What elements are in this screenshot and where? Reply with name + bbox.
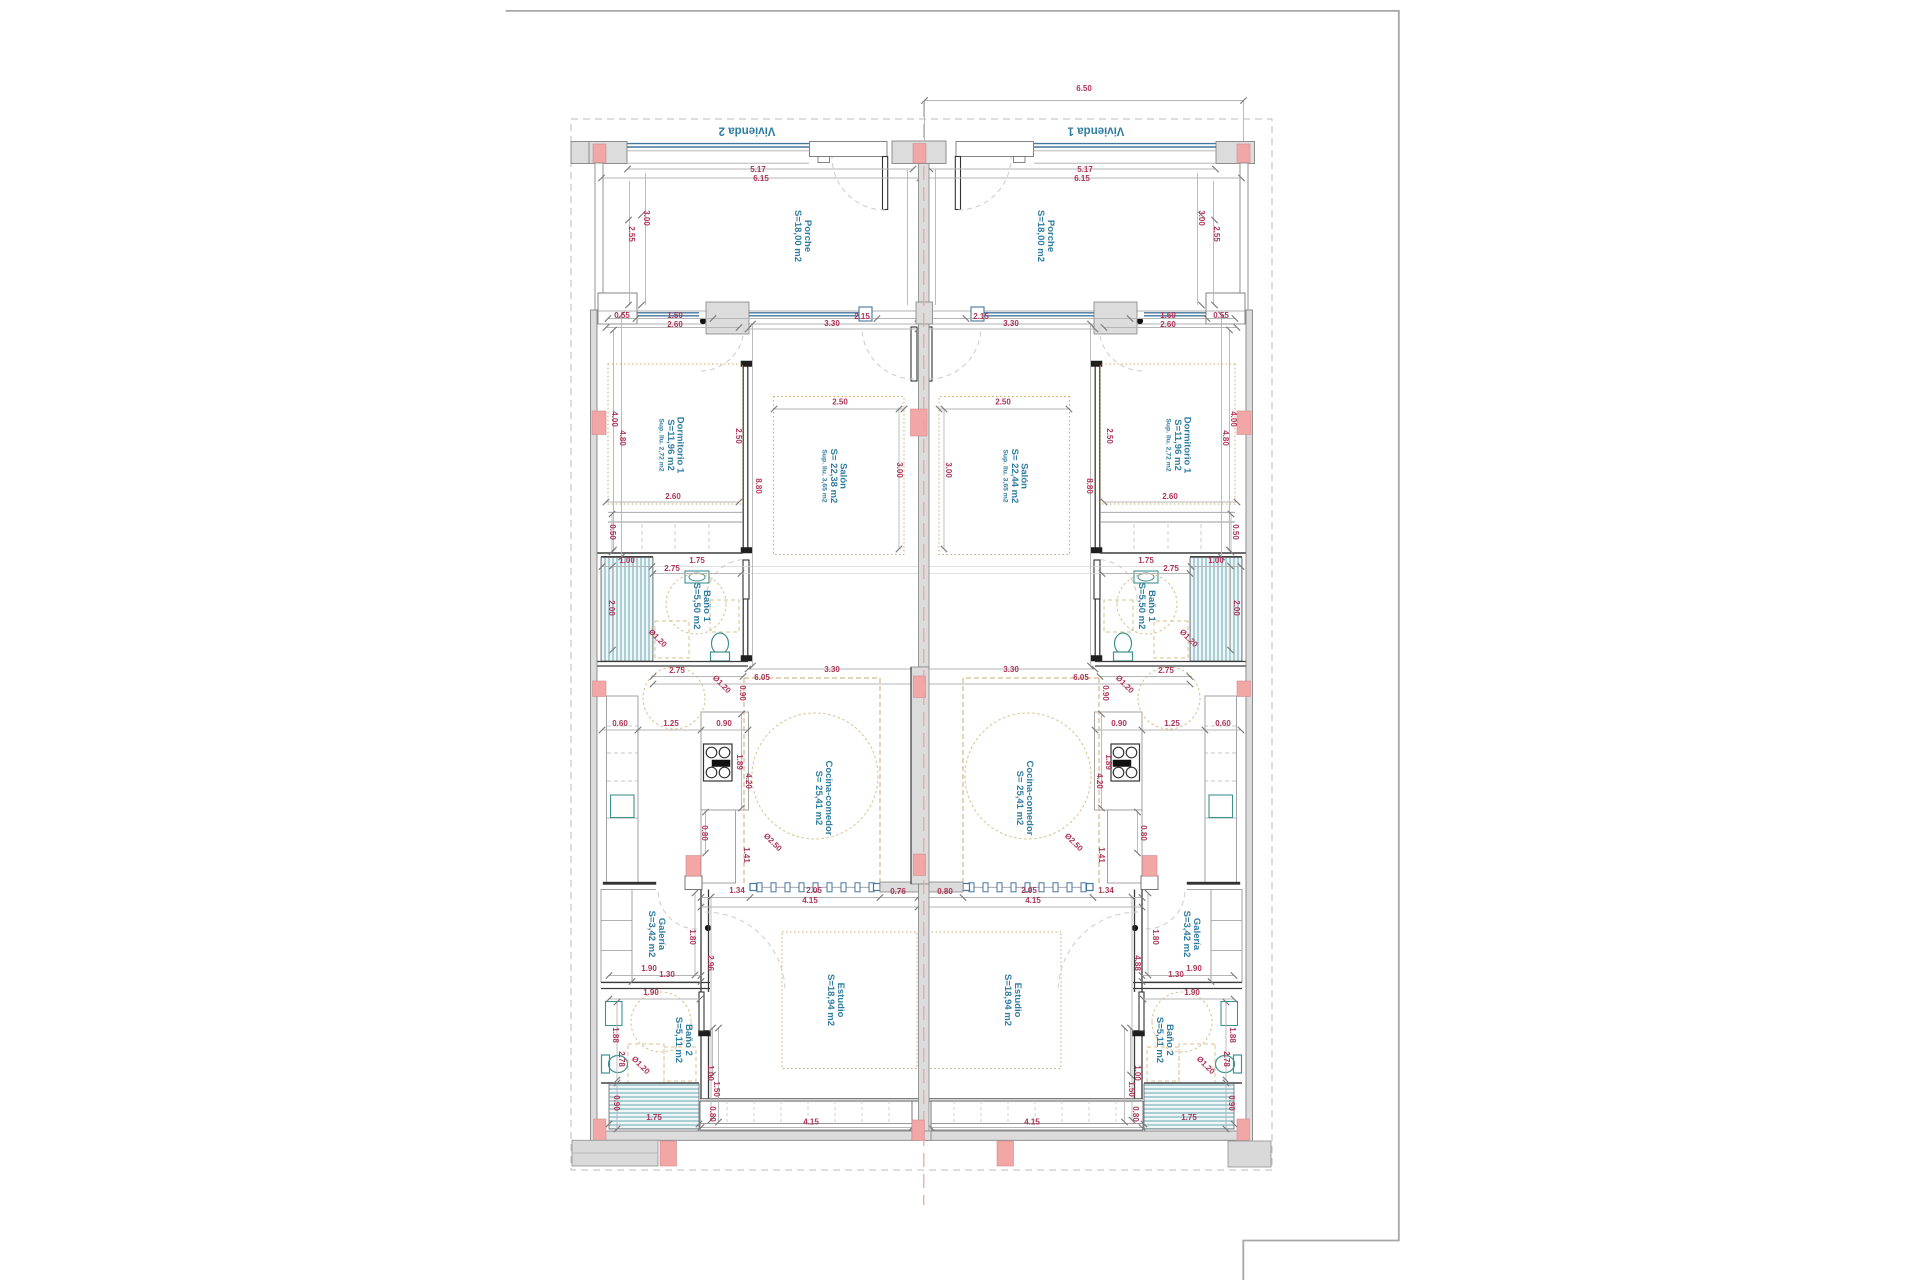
svg-text:6.05: 6.05 <box>1073 673 1089 682</box>
svg-text:Sup. Ilu. 2,72 m2: Sup. Ilu. 2,72 m2 <box>658 418 665 471</box>
svg-text:1.88: 1.88 <box>611 1027 620 1043</box>
svg-text:3.00: 3.00 <box>944 462 953 478</box>
svg-text:S= 25,41 m2: S= 25,41 m2 <box>813 771 824 826</box>
svg-text:S=5,11 m2: S=5,11 m2 <box>673 1017 684 1063</box>
svg-text:3.30: 3.30 <box>1003 665 1019 674</box>
svg-text:4.15: 4.15 <box>1025 896 1041 905</box>
svg-text:S=11,96 m2: S=11,96 m2 <box>665 419 676 471</box>
svg-text:4.20: 4.20 <box>744 773 753 789</box>
svg-text:1.88: 1.88 <box>1228 1027 1237 1043</box>
svg-text:S=18,00 m2: S=18,00 m2 <box>792 210 803 262</box>
svg-text:1.90: 1.90 <box>643 988 659 997</box>
svg-text:2.15: 2.15 <box>973 312 989 321</box>
svg-text:0.90: 0.90 <box>1227 1095 1236 1111</box>
svg-text:2.05: 2.05 <box>1021 886 1037 895</box>
svg-text:2.55: 2.55 <box>627 226 636 242</box>
svg-text:4.88: 4.88 <box>1133 955 1142 971</box>
svg-text:S=5,11 m2: S=5,11 m2 <box>1154 1017 1165 1063</box>
svg-text:0.80: 0.80 <box>708 1106 717 1122</box>
svg-text:2.78: 2.78 <box>617 1051 626 1067</box>
svg-text:5.17: 5.17 <box>1077 165 1093 174</box>
svg-text:2.50: 2.50 <box>995 398 1011 407</box>
svg-text:8.80: 8.80 <box>754 478 763 494</box>
svg-text:4.20: 4.20 <box>1095 773 1104 789</box>
svg-text:S=5,50 m2: S=5,50 m2 <box>1136 583 1147 630</box>
svg-text:4.00: 4.00 <box>1229 411 1238 427</box>
svg-text:4.80: 4.80 <box>618 430 627 446</box>
svg-text:0.55: 0.55 <box>614 311 630 320</box>
svg-text:1.75: 1.75 <box>689 556 705 565</box>
svg-text:1.00: 1.00 <box>619 556 635 565</box>
svg-text:0.80: 0.80 <box>937 887 953 896</box>
svg-text:6.50: 6.50 <box>1076 84 1092 93</box>
svg-text:2.78: 2.78 <box>1222 1051 1231 1067</box>
svg-text:S=3,42 m2: S=3,42 m2 <box>646 911 657 958</box>
svg-text:1.89: 1.89 <box>735 754 744 770</box>
svg-text:4.15: 4.15 <box>803 1118 819 1127</box>
svg-text:2.60: 2.60 <box>667 320 683 329</box>
svg-text:2.60: 2.60 <box>665 492 681 501</box>
svg-text:1.00: 1.00 <box>1208 556 1224 565</box>
svg-text:6.15: 6.15 <box>1074 174 1090 183</box>
svg-text:0.90: 0.90 <box>1111 719 1127 728</box>
svg-text:2.50: 2.50 <box>832 398 848 407</box>
svg-text:0.90: 0.90 <box>1101 685 1110 701</box>
svg-text:1.00: 1.00 <box>1133 1065 1142 1081</box>
svg-text:2.50: 2.50 <box>1105 428 1114 444</box>
svg-text:S=3,42 m2: S=3,42 m2 <box>1181 911 1192 958</box>
svg-text:1.90: 1.90 <box>1184 988 1200 997</box>
svg-text:2.00: 2.00 <box>1232 600 1241 616</box>
svg-text:2.50: 2.50 <box>734 428 743 444</box>
svg-text:6.15: 6.15 <box>753 174 769 183</box>
svg-text:1.41: 1.41 <box>1097 847 1106 863</box>
svg-text:1.00: 1.00 <box>706 1065 715 1081</box>
svg-text:4.00: 4.00 <box>610 411 619 427</box>
svg-text:2.75: 2.75 <box>664 564 680 573</box>
svg-text:0.50: 0.50 <box>608 524 617 540</box>
svg-text:1.34: 1.34 <box>729 886 745 895</box>
svg-text:1.30: 1.30 <box>1168 970 1184 979</box>
svg-text:2.75: 2.75 <box>1158 666 1174 675</box>
svg-text:1.50: 1.50 <box>667 311 683 320</box>
svg-text:1.50: 1.50 <box>1127 1081 1136 1097</box>
svg-text:Vivienda 1: Vivienda 1 <box>1067 125 1124 137</box>
svg-text:S= 25,41 m2: S= 25,41 m2 <box>1014 771 1025 826</box>
svg-text:2.60: 2.60 <box>1160 320 1176 329</box>
svg-text:0.50: 0.50 <box>1231 524 1240 540</box>
svg-text:S=18,00 m2: S=18,00 m2 <box>1035 210 1046 262</box>
svg-text:0.76: 0.76 <box>890 887 906 896</box>
svg-text:3.30: 3.30 <box>1003 319 1019 328</box>
svg-text:1.80: 1.80 <box>1151 929 1160 945</box>
svg-text:2.15: 2.15 <box>854 312 870 321</box>
svg-text:1.90: 1.90 <box>1186 964 1202 973</box>
svg-text:0.80: 0.80 <box>1139 825 1148 841</box>
svg-text:0.80: 0.80 <box>700 825 709 841</box>
svg-text:Sup. Ilu. 3,65 m2: Sup. Ilu. 3,65 m2 <box>1002 449 1009 502</box>
svg-text:S=11,96 m2: S=11,96 m2 <box>1172 419 1183 471</box>
svg-text:0.80: 0.80 <box>1131 1106 1140 1122</box>
svg-text:1.89: 1.89 <box>1104 754 1113 770</box>
svg-text:Sup. Ilu. 2,72 m2: Sup. Ilu. 2,72 m2 <box>1165 418 1172 471</box>
svg-text:0.60: 0.60 <box>612 719 628 728</box>
svg-text:1.75: 1.75 <box>646 1113 662 1122</box>
svg-text:4.15: 4.15 <box>1024 1118 1040 1127</box>
svg-text:0.55: 0.55 <box>1213 311 1229 320</box>
svg-text:3.00: 3.00 <box>1197 210 1206 226</box>
svg-text:1.80: 1.80 <box>688 929 697 945</box>
svg-text:S=18,94 m2: S=18,94 m2 <box>1002 974 1013 1026</box>
svg-text:3.30: 3.30 <box>824 665 840 674</box>
svg-text:1.90: 1.90 <box>641 964 657 973</box>
svg-text:1.75: 1.75 <box>1181 1113 1197 1122</box>
svg-text:S= 22,44 m2: S= 22,44 m2 <box>1009 449 1020 504</box>
svg-text:3.00: 3.00 <box>895 462 904 478</box>
svg-text:S=5,50 m2: S=5,50 m2 <box>691 583 702 630</box>
svg-text:2.60: 2.60 <box>1162 492 1178 501</box>
svg-text:S= 22,38 m2: S= 22,38 m2 <box>828 449 839 504</box>
svg-text:1.25: 1.25 <box>1164 719 1180 728</box>
svg-text:0.90: 0.90 <box>716 719 732 728</box>
svg-text:6.05: 6.05 <box>754 673 770 682</box>
svg-text:2.00: 2.00 <box>607 600 616 616</box>
svg-text:0.60: 0.60 <box>1215 719 1231 728</box>
svg-text:Sup. Ilu. 3,65 m2: Sup. Ilu. 3,65 m2 <box>821 449 828 502</box>
svg-text:8.80: 8.80 <box>1085 478 1094 494</box>
svg-text:0.90: 0.90 <box>612 1095 621 1111</box>
svg-text:2.55: 2.55 <box>1212 226 1221 242</box>
svg-text:1.30: 1.30 <box>659 970 675 979</box>
svg-text:5.17: 5.17 <box>750 165 766 174</box>
svg-text:1.34: 1.34 <box>1098 886 1114 895</box>
svg-text:3.00: 3.00 <box>642 210 651 226</box>
svg-text:1.41: 1.41 <box>742 847 751 863</box>
svg-text:1.60: 1.60 <box>1160 311 1176 320</box>
svg-text:2.75: 2.75 <box>1163 564 1179 573</box>
svg-text:2.96: 2.96 <box>706 955 715 971</box>
svg-text:2.05: 2.05 <box>806 886 822 895</box>
svg-text:1.25: 1.25 <box>663 719 679 728</box>
svg-text:3.30: 3.30 <box>824 319 840 328</box>
svg-text:0.90: 0.90 <box>738 685 747 701</box>
svg-text:2.75: 2.75 <box>669 666 685 675</box>
svg-text:4.80: 4.80 <box>1221 430 1230 446</box>
svg-text:4.15: 4.15 <box>802 896 818 905</box>
svg-text:1.75: 1.75 <box>1138 556 1154 565</box>
svg-text:1.50: 1.50 <box>712 1081 721 1097</box>
svg-text:S=18,94 m2: S=18,94 m2 <box>825 974 836 1026</box>
svg-text:Vivienda 2: Vivienda 2 <box>719 125 776 137</box>
